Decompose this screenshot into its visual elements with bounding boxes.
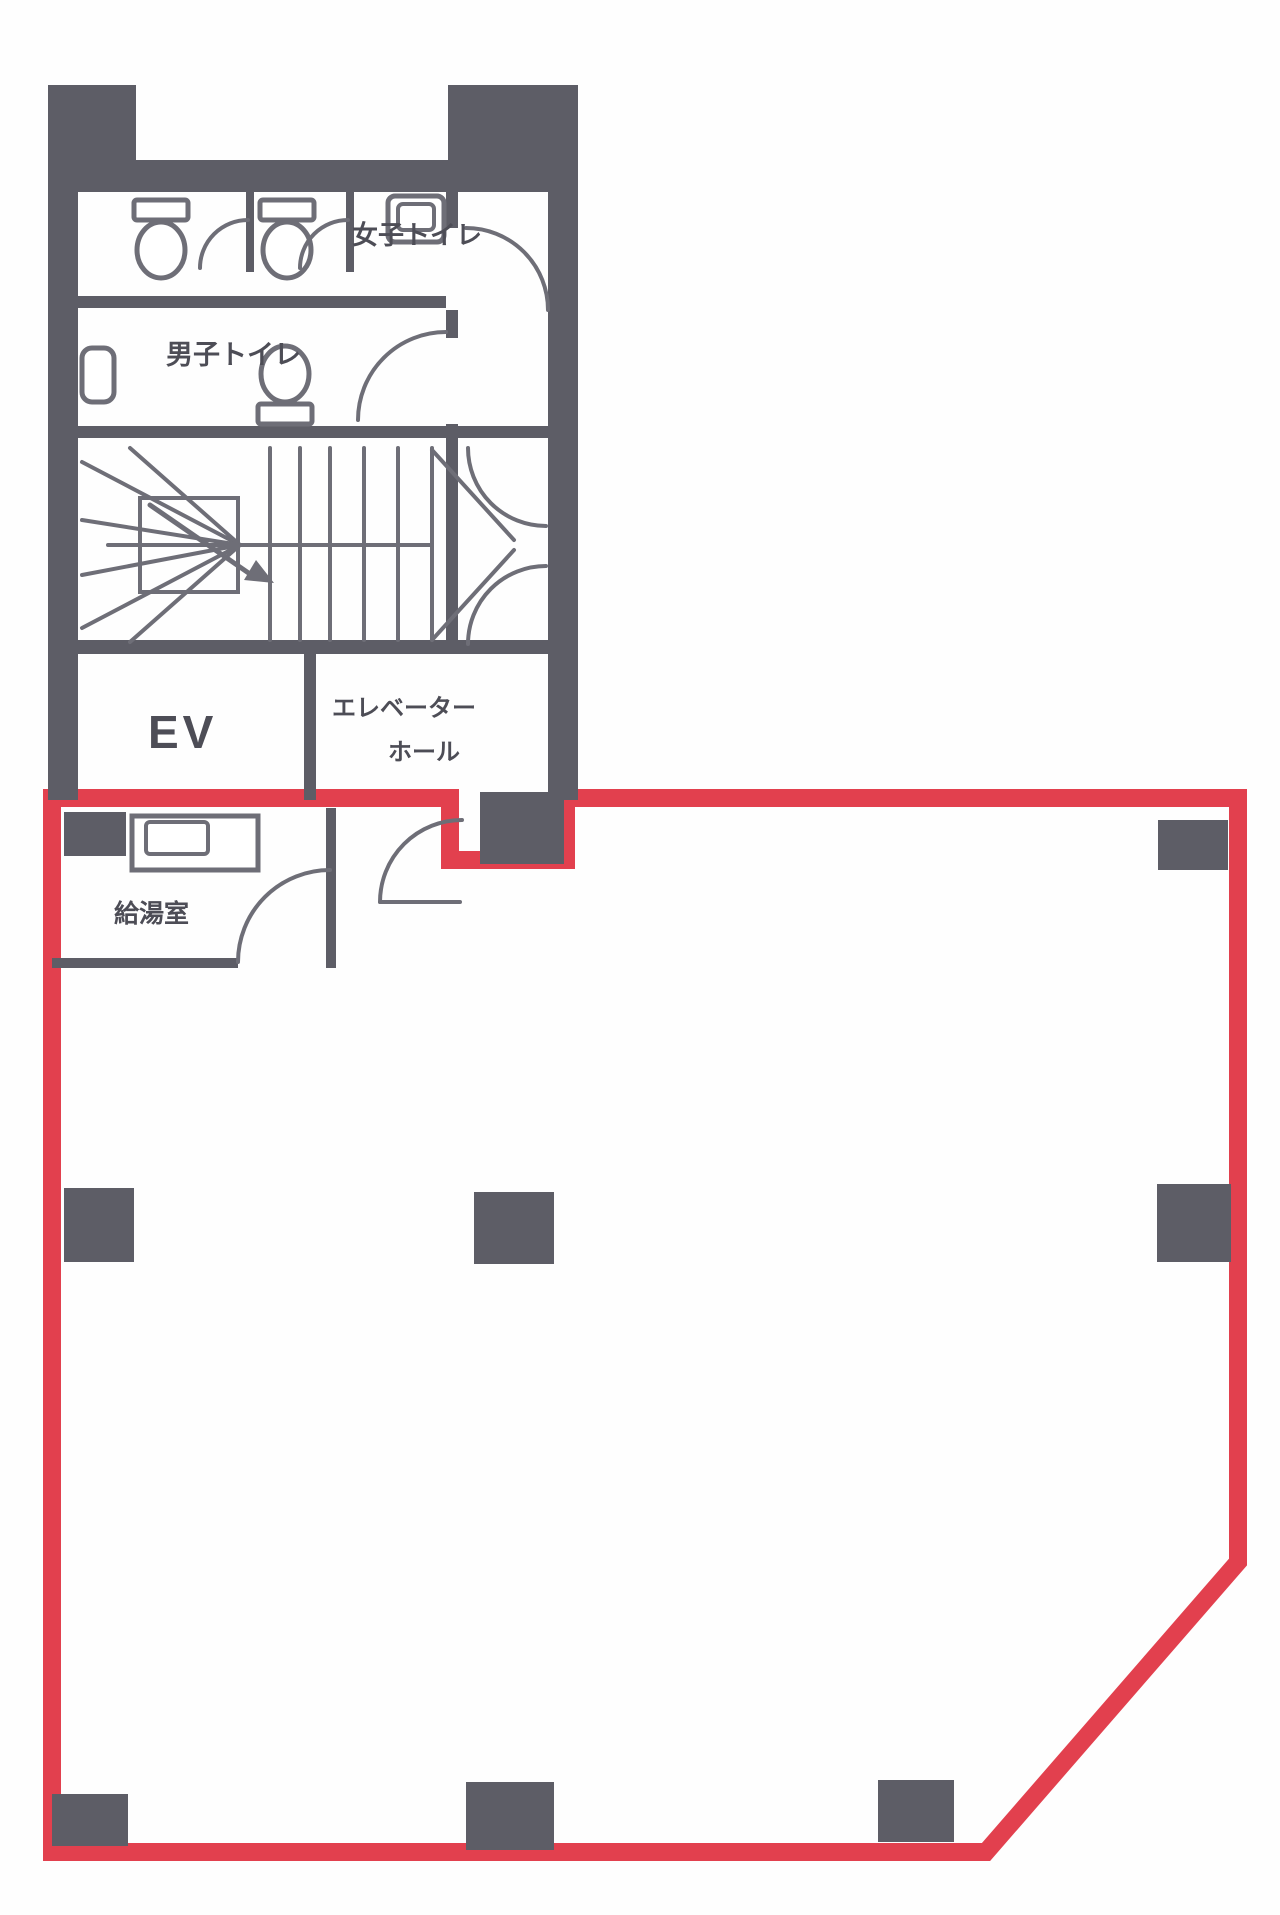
core-wall-top <box>48 160 578 192</box>
urinal <box>82 348 114 402</box>
corridor-wall-segment <box>446 310 458 338</box>
toilet-bowl <box>137 222 185 278</box>
wall-ev-hall-divider <box>304 654 316 800</box>
toilet-tank <box>258 404 312 424</box>
toilet-tank <box>134 200 188 220</box>
door-arc <box>358 332 446 420</box>
pillar-top-right <box>1158 820 1228 870</box>
stair-winder-line <box>432 550 514 640</box>
room-womens-toilet: 女子トイレ <box>134 192 548 310</box>
mens-toilet-label: 男子トイレ <box>166 340 301 370</box>
floor-plan-page: 女子トイレ 男子トイレ <box>0 0 1280 1915</box>
service-core <box>48 85 578 800</box>
wall-mens-stairs-divider <box>78 426 550 438</box>
pillar-mid-center <box>474 1192 554 1264</box>
pillar-bottom-left <box>52 1794 128 1846</box>
pillar-core-notch <box>480 792 564 864</box>
wall-stairs-ev-divider <box>78 640 550 654</box>
toilet-tank <box>260 200 314 220</box>
kitchenette-wall-bottom <box>52 958 238 968</box>
elevator-hall-label-line1: エレベーター <box>332 695 476 722</box>
structural-pillars <box>52 792 1231 1850</box>
kitchenette-counter <box>132 816 258 870</box>
elevator-hall-label-line2: ホール <box>388 739 460 766</box>
tenant-area <box>52 798 1238 1852</box>
floor-plan-drawing: 女子トイレ 男子トイレ <box>0 0 1280 1915</box>
kitchenette-wall-right <box>326 808 336 968</box>
staircase <box>82 448 546 644</box>
door-arc <box>468 566 546 644</box>
core-wall-right <box>548 160 578 800</box>
elevator-label: EV <box>148 706 217 758</box>
door-arc <box>238 870 330 962</box>
pillar-bottom-right <box>878 1780 954 1842</box>
pillar-bottom-center <box>466 1782 554 1850</box>
pillar-mid-right <box>1157 1184 1231 1262</box>
pillar-mid-left <box>64 1188 134 1262</box>
stall-partition <box>246 192 254 272</box>
kitchenette-label: 給湯室 <box>114 899 189 928</box>
core-wall-left <box>48 160 78 800</box>
stair-winder-line <box>432 450 514 540</box>
womens-toilet-label: 女子トイレ <box>352 220 482 250</box>
door-arc <box>468 448 546 526</box>
door-arc <box>200 220 248 268</box>
tenant-boundary-red-outline <box>52 798 1238 1852</box>
wall-womens-mens-divider <box>78 296 446 308</box>
room-mens-toilet: 男子トイレ <box>82 332 446 424</box>
pillar-kitchenette <box>64 812 126 856</box>
